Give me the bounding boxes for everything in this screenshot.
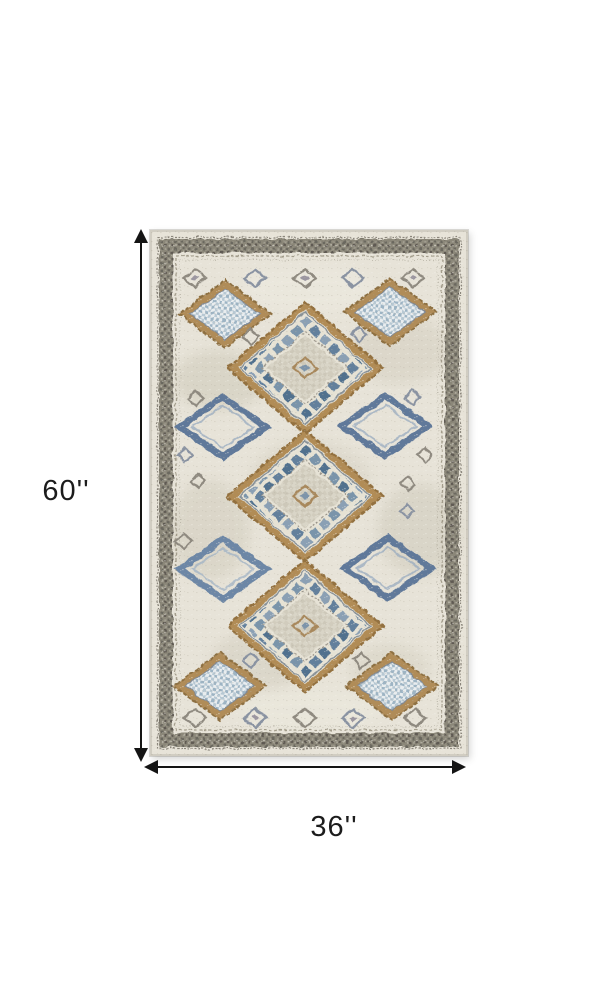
height-label: 60'': [28, 477, 104, 506]
product-dimension-diagram: 60'' 36'': [0, 0, 612, 1000]
width-label: 36'': [292, 813, 376, 842]
fabric-texture-overlay: [150, 230, 468, 756]
arrow-right-icon: [452, 760, 466, 774]
rug-product-image: [150, 230, 468, 756]
arrow-up-icon: [134, 229, 148, 243]
rug-illustration: [150, 230, 468, 756]
width-dimension-line: [155, 766, 457, 768]
arrow-left-icon: [144, 760, 158, 774]
height-dimension-line: [140, 235, 142, 756]
